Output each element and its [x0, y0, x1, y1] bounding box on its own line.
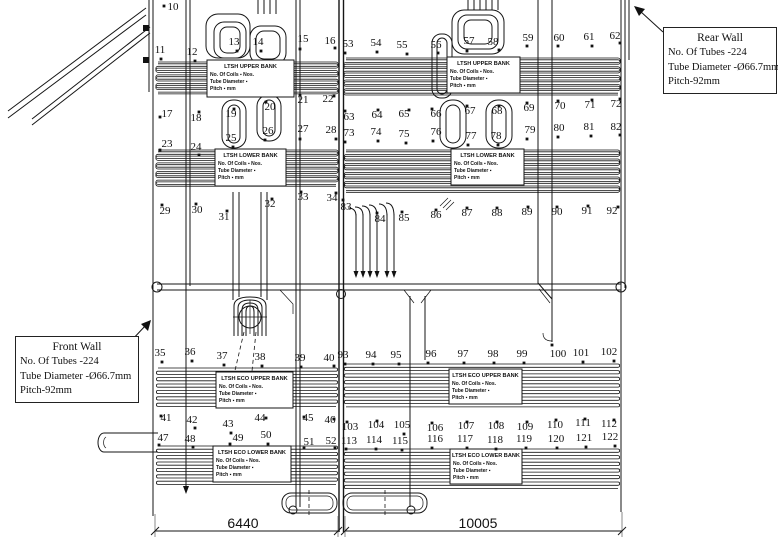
- tube-point-22: 22: [323, 93, 336, 105]
- tube-point-63: 63: [344, 110, 356, 123]
- tube-point-96: 96: [426, 348, 438, 364]
- tube-point-number: 38: [255, 351, 267, 363]
- tube-point-95: 95: [391, 349, 403, 365]
- tube-point-number: 105: [394, 419, 411, 431]
- tube-point-dot: [265, 101, 268, 104]
- tube-point-number: 10: [168, 1, 180, 13]
- tube-point-dot: [582, 361, 585, 364]
- tube-point-dot: [496, 207, 499, 210]
- tube-point-51: 51: [303, 436, 315, 449]
- tube-point-83: 83: [341, 199, 353, 213]
- tube-point-number: 42: [187, 414, 198, 426]
- tube-point-dot: [271, 198, 274, 201]
- tube-point-dot: [498, 105, 501, 108]
- tube-point-dot: [614, 445, 617, 448]
- front-wall-callout: Front Wall No. Of Tubes -224 Tube Diamet…: [15, 336, 139, 403]
- tube-point-42: 42: [187, 414, 198, 429]
- tube-point-44: 44: [255, 412, 268, 424]
- tube-point-dot: [432, 140, 435, 143]
- bank-label-text: Tube Diameter ▪: [452, 388, 490, 394]
- tube-point-number: 58: [488, 36, 500, 48]
- tube-point-number: 122: [602, 431, 619, 443]
- tube-point-57: 57: [464, 35, 476, 52]
- tube-point-number: 93: [338, 349, 350, 361]
- tube-point-number: 30: [192, 204, 204, 216]
- tube-point-dot: [377, 140, 380, 143]
- tube-point-dot: [406, 53, 409, 56]
- tube-point-number: 94: [366, 349, 378, 361]
- bank-label-text: LTSH UPPER BANK: [224, 64, 277, 70]
- tube-point-74: 74: [371, 126, 383, 142]
- tube-point-number: 27: [298, 123, 310, 135]
- tube-point-dot: [401, 449, 404, 452]
- tube-point-34: 34: [327, 192, 339, 204]
- tube-point-dot: [335, 138, 338, 141]
- tube-point-number: 31: [219, 211, 230, 223]
- bank-label-text: No. Of Coils ▪ Nos.: [216, 458, 261, 464]
- front-wall-pitch: Pitch-92mm: [20, 384, 134, 399]
- tube-point-66: 66: [431, 108, 443, 120]
- tube-point-14: 14: [253, 36, 265, 52]
- bank-label-text: Tube Diameter ▪: [450, 76, 488, 82]
- tube-point-dot: [587, 205, 590, 208]
- bank-label-text: LTSH ECO UPPER BANK: [452, 373, 518, 379]
- tube-point-dot: [463, 362, 466, 365]
- tube-point-number: 36: [185, 346, 197, 358]
- tube-point-15: 15: [298, 33, 310, 50]
- tube-point-37: 37: [217, 350, 229, 366]
- bank-label-text: LTSH UPPER BANK: [457, 61, 510, 67]
- bank-label-text: Pitch ▪ mm: [453, 475, 479, 481]
- tube-point-dot: [526, 102, 529, 105]
- tube-point-17: 17: [159, 108, 173, 120]
- tube-point-97: 97: [458, 348, 470, 364]
- tube-point-number: 76: [431, 126, 443, 138]
- tube-point-number: 40: [324, 352, 336, 364]
- tube-point-number: 59: [523, 32, 535, 44]
- bank-label-box: LTSH LOWER BANKNo. Of Coils ▪ Nos.Tube D…: [451, 149, 524, 185]
- tube-point-number: 26: [263, 125, 275, 137]
- tube-point-dot: [613, 419, 616, 422]
- tube-point-number: 119: [516, 433, 533, 445]
- tube-point-dot: [161, 361, 164, 364]
- tube-point-dot: [466, 50, 469, 53]
- drawing-canvas: LTSH UPPER BANKNo. Of Coils ▪ Nos.Tube D…: [0, 0, 778, 544]
- tube-point-number: 70: [555, 100, 567, 112]
- tube-point-94: 94: [366, 349, 378, 365]
- tube-point-dot: [466, 207, 469, 210]
- tube-point-dot: [194, 427, 197, 430]
- tube-point-60: 60: [554, 32, 566, 47]
- tube-point-number: 96: [426, 348, 438, 360]
- tube-point-dot: [585, 446, 588, 449]
- tube-point-88: 88: [492, 207, 504, 219]
- tube-point-number: 60: [554, 32, 566, 44]
- dimension: 6440: [151, 515, 342, 535]
- tube-point-78: 78: [491, 130, 503, 146]
- tube-point-number: 33: [298, 191, 310, 203]
- bank-label-text: Tube Diameter ▪: [454, 168, 492, 174]
- tube-point-dot: [493, 362, 496, 365]
- tube-point-dot: [431, 447, 434, 450]
- tube-point-number: 97: [458, 348, 470, 360]
- bank-label-text: Pitch ▪ mm: [450, 83, 476, 89]
- tube-point-dot: [299, 94, 302, 97]
- tube-point-87: 87: [462, 207, 474, 219]
- outlet-headers: [282, 490, 427, 516]
- tube-point-16: 16: [325, 35, 337, 49]
- tube-point-dot: [159, 116, 162, 119]
- tube-point-19: 19: [226, 108, 238, 120]
- tube-point-dot: [427, 362, 430, 365]
- tube-point-number: 68: [492, 105, 504, 117]
- tube-point-26: 26: [263, 125, 275, 141]
- tube-point-number: 15: [298, 33, 310, 45]
- tube-point-103: 103: [342, 421, 359, 433]
- bank-label-text: Pitch ▪ mm: [218, 175, 244, 181]
- tube-point-number: 41: [161, 412, 172, 424]
- tube-point-45: 45: [303, 412, 315, 424]
- tube-point-number: 48: [185, 433, 197, 445]
- tube-point-dot: [557, 45, 560, 48]
- tube-point-dot: [431, 422, 434, 425]
- tube-point-110: 110: [547, 419, 564, 431]
- tube-point-dot: [619, 42, 622, 45]
- tube-point-dot: [466, 421, 469, 424]
- dimension-value: 10005: [459, 515, 498, 531]
- bank-label-text: Tube Diameter ▪: [210, 79, 248, 85]
- tube-point-number: 78: [491, 130, 503, 142]
- tube-point-number: 100: [550, 348, 567, 360]
- tube-point-dot: [303, 447, 306, 450]
- tube-point-number: 99: [517, 348, 529, 360]
- tube-point-12: 12: [187, 46, 198, 62]
- tube-point-dot: [377, 109, 380, 112]
- tube-point-dot: [527, 206, 530, 209]
- tube-point-dot: [617, 206, 620, 209]
- tube-point-dot: [333, 418, 336, 421]
- tube-point-dot: [160, 58, 163, 61]
- tube-point-35: 35: [155, 347, 167, 363]
- tube-point-dot: [344, 141, 347, 144]
- tube-point-23: 23: [159, 138, 173, 151]
- tube-point-65: 65: [399, 108, 411, 120]
- tube-point-dot: [265, 417, 268, 420]
- tube-point-27: 27: [298, 123, 310, 140]
- tube-point-number: 55: [397, 39, 409, 51]
- tube-point-dot: [590, 135, 593, 138]
- tube-point-71: 71: [585, 99, 596, 111]
- tube-point-38: 38: [255, 351, 267, 367]
- tube-point-dot: [267, 443, 270, 446]
- tube-point-62: 62: [610, 30, 622, 44]
- tube-point-86: 86: [431, 209, 443, 221]
- bank-label-box: LTSH ECO LOWER BANKNo. Of Coils ▪ Nos.Tu…: [213, 446, 291, 482]
- tube-point-dot: [303, 416, 306, 419]
- tube-point-77: 77: [466, 130, 478, 146]
- tube-point-number: 75: [399, 128, 411, 140]
- tube-point-18: 18: [191, 111, 203, 124]
- tube-point-73: 73: [344, 127, 356, 143]
- tube-point-119: 119: [516, 433, 533, 449]
- tube-point-dot: [229, 443, 232, 446]
- tube-point-68: 68: [492, 105, 504, 117]
- tube-point-61: 61: [584, 31, 595, 47]
- tube-point-dot: [191, 360, 194, 363]
- tube-point-dot: [526, 45, 529, 48]
- tube-point-dot: [437, 52, 440, 55]
- tube-point-number: 52: [326, 435, 337, 447]
- tube-point-dot: [236, 50, 239, 53]
- tube-point-70: 70: [555, 100, 567, 112]
- tube-point-number: 74: [371, 126, 383, 138]
- tube-point-number: 53: [343, 38, 355, 50]
- tube-point-dot: [261, 365, 264, 368]
- tube-point-13: 13: [229, 36, 241, 52]
- tube-point-dot: [232, 146, 235, 149]
- tube-point-number: 121: [576, 432, 593, 444]
- bank-label-box: LTSH ECO UPPER BANKNo. Of Coils ▪ Nos.Tu…: [216, 372, 293, 408]
- tube-point-dot: [466, 447, 469, 450]
- tube-point-dot: [344, 363, 347, 366]
- tube-point-10: 10: [163, 1, 179, 13]
- tube-point-number: 28: [326, 124, 338, 136]
- tube-point-dot: [344, 52, 347, 55]
- bank-label-text: No. Of Coils ▪ Nos.: [454, 161, 499, 167]
- tube-point-number: 73: [344, 127, 356, 139]
- bank-label-text: LTSH LOWER BANK: [223, 153, 277, 159]
- tube-point-number: 24: [191, 141, 203, 153]
- tube-point-dot: [372, 363, 375, 366]
- dimension-extensions: [155, 512, 622, 537]
- tube-point-dot: [408, 109, 411, 112]
- tube-point-33: 33: [298, 191, 310, 203]
- tube-point-dot: [466, 105, 469, 108]
- tube-point-dot: [160, 415, 163, 418]
- tube-point-dot: [435, 209, 438, 212]
- tube-point-121: 121: [576, 432, 593, 448]
- tube-point-number: 84: [375, 213, 387, 225]
- tube-point-dot: [555, 419, 558, 422]
- tube-point-dot: [375, 448, 378, 451]
- tube-point-dot: [584, 418, 587, 421]
- tube-point-31: 31: [219, 210, 230, 223]
- tube-point-dot: [223, 364, 226, 367]
- bank-label-text: Tube Diameter ▪: [218, 168, 256, 174]
- rear-wall-diameter: Tube Diameter -Ø66.7mm: [668, 61, 772, 76]
- tube-point-dot: [158, 444, 161, 447]
- tube-point-46: 46: [325, 414, 337, 426]
- rear-wall-title: Rear Wall: [668, 30, 772, 46]
- bank-label-box: LTSH UPPER BANKNo. Of Coils ▪ Nos.Tube D…: [207, 60, 294, 97]
- tube-point-85: 85: [399, 211, 411, 224]
- tube-point-number: 98: [488, 348, 500, 360]
- tube-point-number: 63: [344, 111, 356, 123]
- tube-point-98: 98: [488, 348, 500, 364]
- tube-point-117: 117: [457, 433, 474, 449]
- tube-point-29: 29: [160, 204, 172, 217]
- tube-point-number: 116: [427, 433, 444, 445]
- tube-point-number: 101: [573, 347, 590, 359]
- bank-label-text: Pitch ▪ mm: [452, 395, 478, 401]
- tube-point-dot: [300, 366, 303, 369]
- tube-point-90: 90: [552, 206, 564, 218]
- tube-point-dot: [333, 365, 336, 368]
- tube-point-number: 69: [524, 102, 536, 114]
- tube-point-dot: [333, 95, 336, 98]
- front-wall-title: Front Wall: [20, 339, 134, 355]
- bank-label-text: No. Of Coils ▪ Nos.: [219, 384, 264, 390]
- tube-point-number: 117: [457, 433, 474, 445]
- bank-label-text: No. Of Coils ▪ Nos.: [453, 461, 498, 467]
- tube-point-dot: [260, 50, 263, 53]
- tube-point-dot: [163, 5, 166, 8]
- rear-wall-pitch: Pitch-92mm: [668, 75, 772, 90]
- tube-point-101: 101: [573, 347, 590, 363]
- tube-point-dot: [195, 203, 198, 206]
- tube-point-81: 81: [584, 121, 595, 137]
- tube-point-dot: [525, 447, 528, 450]
- tube-point-102: 102: [601, 346, 618, 362]
- tube-point-number: 18: [191, 112, 203, 124]
- bank-label-text: No. Of Coils ▪ Nos.: [452, 381, 497, 387]
- tube-point-dot: [405, 142, 408, 145]
- tube-point-21: 21: [298, 94, 309, 106]
- tube-point-number: 57: [464, 35, 476, 47]
- dimension: 10005: [341, 515, 626, 535]
- tube-point-dot: [334, 47, 337, 50]
- tube-point-number: 43: [223, 418, 235, 430]
- tube-point-number: 92: [607, 205, 618, 217]
- bank-label-text: No. Of Coils ▪ Nos.: [450, 69, 495, 75]
- tube-point-dot: [467, 144, 470, 147]
- tube-point-number: 16: [325, 35, 337, 47]
- tube-point-number: 113: [341, 435, 358, 447]
- tube-point-number: 120: [548, 433, 565, 445]
- tube-point-number: 14: [253, 36, 265, 48]
- tube-point-dot: [192, 446, 195, 449]
- tube-point-number: 22: [323, 93, 334, 105]
- tube-point-91: 91: [582, 205, 593, 217]
- tube-point-dot: [198, 154, 201, 157]
- bank-label-text: Pitch ▪ mm: [219, 398, 245, 404]
- bank-label-text: LTSH ECO UPPER BANK: [221, 376, 287, 382]
- tube-point-dot: [376, 420, 379, 423]
- tube-point-number: 49: [233, 432, 245, 444]
- tube-point-47: 47: [158, 432, 170, 446]
- tube-point-number: 29: [160, 205, 172, 217]
- bank-label-text: LTSH ECO LOWER BANK: [452, 453, 520, 459]
- tube-point-number: 23: [162, 138, 174, 150]
- tube-point-number: 44: [255, 412, 267, 424]
- tube-point-dot: [335, 192, 338, 195]
- tube-point-11: 11: [155, 44, 166, 60]
- tube-point-number: 25: [226, 132, 238, 144]
- tube-point-dot: [619, 134, 622, 137]
- tube-point-105: 105: [394, 419, 411, 435]
- bank-label-box: LTSH ECO LOWER BANKNo. Of Coils ▪ Nos.Tu…: [450, 449, 522, 484]
- tube-point-100: 100: [550, 344, 567, 360]
- tube-point-number: 11: [155, 44, 166, 56]
- bank-label-box: LTSH ECO UPPER BANKNo. Of Coils ▪ Nos.Tu…: [449, 369, 522, 404]
- tube-point-dot: [495, 448, 498, 451]
- tube-point-111: 111: [575, 417, 591, 429]
- tube-point-28: 28: [326, 124, 338, 140]
- bank-label-text: No. Of Coils ▪ Nos.: [218, 161, 263, 167]
- tube-point-dot: [523, 362, 526, 365]
- tube-point-59: 59: [523, 32, 535, 47]
- tube-point-number: 118: [487, 434, 504, 446]
- front-wall-diameter: Tube Diameter -Ø66.7mm: [20, 370, 134, 385]
- tube-point-number: 13: [229, 36, 241, 48]
- rear-wall-callout: Rear Wall No. Of Tubes -224 Tube Diamete…: [663, 27, 777, 94]
- tube-point-41: 41: [160, 412, 172, 424]
- tube-point-number: 95: [391, 349, 403, 361]
- tube-point-number: 51: [304, 436, 315, 448]
- tube-point-number: 35: [155, 347, 167, 359]
- tube-point-104: 104: [368, 419, 385, 431]
- dimension-value: 6440: [227, 515, 258, 531]
- bank-label-text: No. Of Coils ▪ Nos.: [210, 72, 255, 78]
- tube-point-118: 118: [487, 434, 504, 450]
- bank-label-text: Tube Diameter ▪: [216, 465, 254, 471]
- tube-point-number: 77: [466, 130, 478, 142]
- tube-point-dot: [194, 60, 197, 63]
- tube-point-number: 17: [162, 108, 174, 120]
- tube-point-dot: [345, 448, 348, 451]
- tube-point-number: 37: [217, 350, 229, 362]
- tube-point-55: 55: [397, 39, 409, 55]
- front-wall-tubes: No. Of Tubes -224: [20, 355, 134, 370]
- tube-point-69: 69: [524, 102, 536, 114]
- tube-point-dot: [299, 48, 302, 51]
- tube-point-52: 52: [326, 435, 337, 449]
- bank-label-text: Pitch ▪ mm: [454, 175, 480, 181]
- tube-point-number: 114: [366, 434, 383, 446]
- tube-point-92: 92: [607, 205, 620, 217]
- tube-point-dot: [342, 199, 345, 202]
- tube-point-dot: [556, 206, 559, 209]
- tube-point-number: 80: [554, 122, 566, 134]
- tube-point-82: 82: [611, 121, 622, 136]
- tube-point-number: 82: [611, 121, 622, 133]
- tube-point-dot: [161, 204, 164, 207]
- lower-header-pipe: [152, 282, 626, 314]
- tube-point-114: 114: [366, 434, 383, 450]
- tube-point-number: 111: [575, 417, 591, 429]
- tube-point-dot: [496, 421, 499, 424]
- tube-point-number: 102: [601, 346, 618, 358]
- tube-point-dot: [198, 111, 201, 114]
- tube-point-107: 107: [458, 420, 475, 432]
- tube-point-dot: [557, 136, 560, 139]
- tube-point-number: 85: [399, 212, 411, 224]
- tube-point-64: 64: [372, 109, 384, 121]
- tube-point-number: 81: [584, 121, 595, 133]
- tube-point-54: 54: [371, 37, 383, 53]
- tube-point-53: 53: [343, 38, 355, 54]
- bank-label-text: Tube Diameter ▪: [453, 468, 491, 474]
- tube-point-dot: [591, 99, 594, 102]
- tube-point-number: 103: [342, 421, 359, 433]
- tube-point-dot: [619, 98, 622, 101]
- tube-point-75: 75: [399, 128, 411, 144]
- tube-point-116: 116: [427, 433, 444, 449]
- feed-pipe: [98, 433, 158, 452]
- tube-point-dot: [299, 138, 302, 141]
- bank-label-text: Pitch ▪ mm: [216, 472, 242, 478]
- tube-point-dot: [557, 100, 560, 103]
